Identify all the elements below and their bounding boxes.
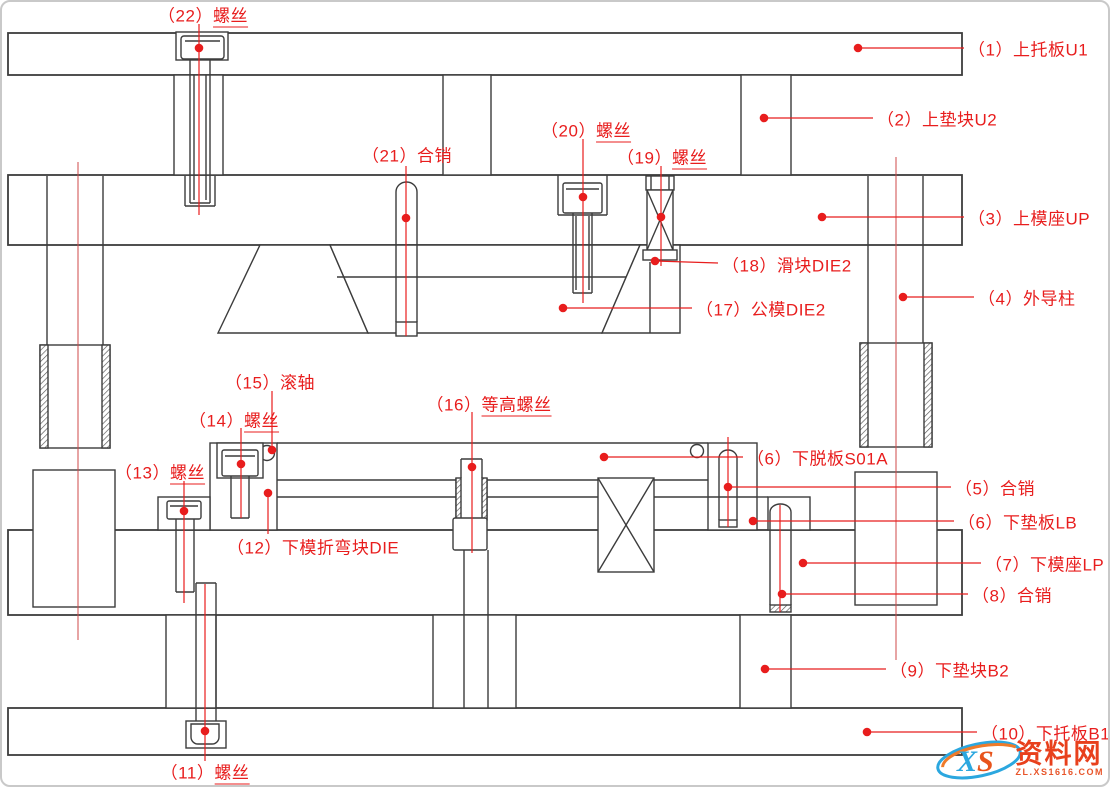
callout-number: （15） xyxy=(225,374,280,393)
callout-label-14-螺丝: （14）螺丝 xyxy=(189,407,279,432)
callout-number: （6） xyxy=(958,514,1003,533)
callout-label-12-下模折弯块DIE: （12）下模折弯块DIE xyxy=(227,534,399,559)
callout-part-name: 上模座UP xyxy=(1013,210,1090,229)
callout-part-name: 滚轴 xyxy=(280,374,315,393)
callout-label-7-下模座LP: （7）下模座LP xyxy=(985,551,1104,576)
watermark-site-url: ZL.XS1616.COM xyxy=(1015,767,1104,777)
callout-part-name: 下模座LP xyxy=(1030,556,1104,575)
callout-number: （6） xyxy=(747,450,792,469)
callout-number: （20） xyxy=(541,122,596,141)
callout-label-17-公模DIE2: （17）公模DIE2 xyxy=(696,296,826,321)
callout-label-19-螺丝: （19）螺丝 xyxy=(617,144,707,169)
callout-number: （19） xyxy=(617,149,672,168)
callout-number: （17） xyxy=(696,301,751,320)
callout-part-name: 合销 xyxy=(1000,480,1035,499)
callout-part-name: 螺丝 xyxy=(170,464,205,485)
callout-number: （12） xyxy=(227,539,282,558)
callout-label-2-上垫块U2: （2）上垫块U2 xyxy=(877,106,997,131)
callout-label-9-下垫块B2: （9）下垫块B2 xyxy=(890,657,1009,682)
callout-part-name: 合销 xyxy=(1017,587,1052,606)
callout-number: （8） xyxy=(972,587,1017,606)
callout-label-22-螺丝: （22）螺丝 xyxy=(158,2,248,27)
watermark: XS 资料网 ZL.XS1616.COM xyxy=(933,733,1104,785)
callout-number: （21） xyxy=(362,147,417,166)
callout-label-18-滑块DIE2: （18）滑块DIE2 xyxy=(722,252,852,277)
callout-part-name: 螺丝 xyxy=(672,149,707,170)
callout-label-20-螺丝: （20）螺丝 xyxy=(541,117,631,142)
callout-label-15-滚轴: （15）滚轴 xyxy=(225,369,315,394)
callout-label-1-上托板U1: （1）上托板U1 xyxy=(968,36,1088,61)
callout-part-name: 合销 xyxy=(417,147,452,166)
callout-number: （22） xyxy=(158,7,213,26)
callout-label-8-合销: （8）合销 xyxy=(972,582,1052,607)
callout-part-name: 下垫板LB xyxy=(1003,514,1077,533)
callout-number: （5） xyxy=(955,480,1000,499)
callout-number: （9） xyxy=(890,662,935,681)
callout-labels: （22）螺丝（1）上托板U1（2）上垫块U2（21）合销（20）螺丝（19）螺丝… xyxy=(0,0,1110,787)
watermark-logo-text: XS xyxy=(956,745,994,778)
callout-label-13-螺丝: （13）螺丝 xyxy=(115,459,205,484)
watermark-site-name: 资料网 xyxy=(1015,741,1102,767)
callout-part-name: 螺丝 xyxy=(213,7,248,28)
callout-part-name: 下脱板S01A xyxy=(792,450,888,469)
callout-label-6-下脱板S01A: （6）下脱板S01A xyxy=(747,445,888,470)
callout-label-3-上模座UP: （3）上模座UP xyxy=(968,205,1090,230)
callout-label-21-合销: （21）合销 xyxy=(362,142,452,167)
callout-part-name: 螺丝 xyxy=(244,412,279,433)
callout-label-6-下垫板LB: （6）下垫板LB xyxy=(958,509,1077,534)
callout-part-name: 下模折弯块DIE xyxy=(282,539,399,558)
callout-number: （1） xyxy=(968,41,1013,60)
callout-number: （13） xyxy=(115,464,170,483)
callout-number: （14） xyxy=(189,412,244,431)
callout-label-16-等高螺丝: （16）等高螺丝 xyxy=(427,391,552,416)
callout-label-4-外导柱: （4）外导柱 xyxy=(978,285,1075,310)
callout-part-name: 螺丝 xyxy=(596,122,631,143)
callout-label-11-螺丝: （11）螺丝 xyxy=(161,759,250,784)
callout-number: （11） xyxy=(161,764,215,783)
callout-part-name: 滑块DIE2 xyxy=(777,257,852,276)
callout-part-name: 上托板U1 xyxy=(1013,41,1088,60)
callout-number: （18） xyxy=(722,257,777,276)
callout-number: （7） xyxy=(985,556,1030,575)
callout-number: （3） xyxy=(968,210,1013,229)
callout-label-5-合销: （5）合销 xyxy=(955,475,1035,500)
callout-part-name: 下垫块B2 xyxy=(935,662,1009,681)
callout-number: （2） xyxy=(877,111,922,130)
callout-part-name: 外导柱 xyxy=(1023,290,1076,309)
callout-part-name: 公模DIE2 xyxy=(751,301,826,320)
callout-part-name: 等高螺丝 xyxy=(481,396,551,417)
callout-part-name: 上垫块U2 xyxy=(922,111,997,130)
callout-part-name: 螺丝 xyxy=(214,764,249,785)
callout-number: （16） xyxy=(427,396,482,415)
callout-number: （4） xyxy=(978,290,1023,309)
